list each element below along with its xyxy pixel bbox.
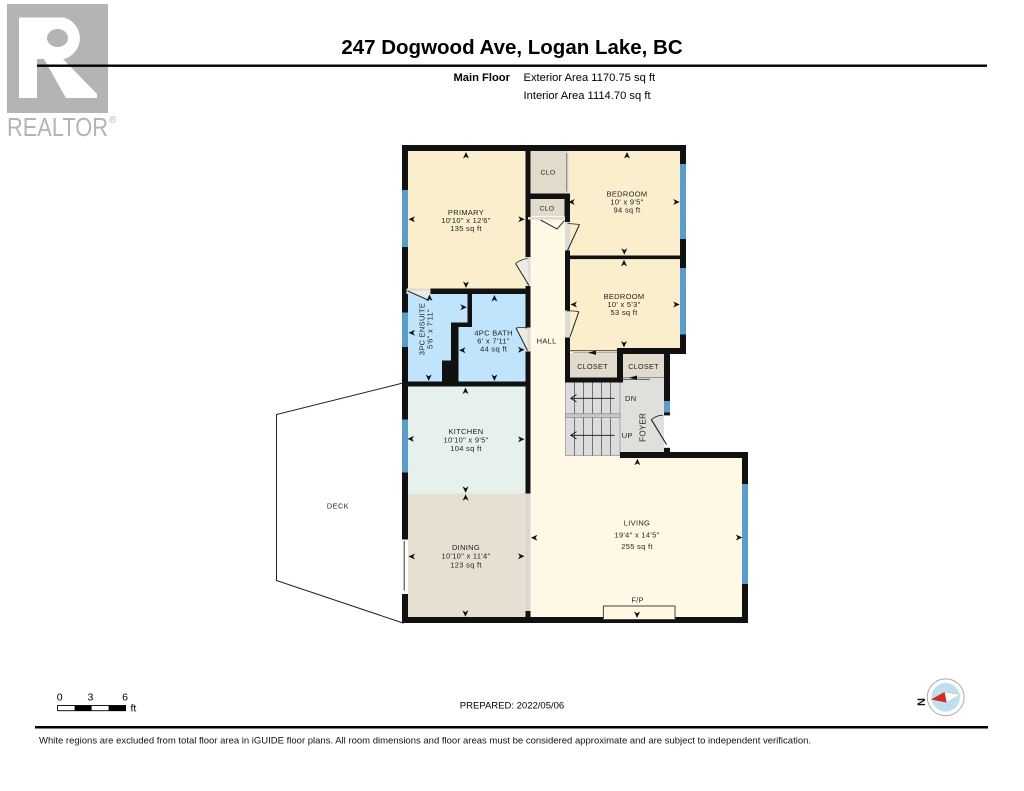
svg-text:REALTOR: REALTOR <box>7 112 108 142</box>
svg-text:White regions are excluded fro: White regions are excluded from total fl… <box>39 736 811 747</box>
svg-text:104 sq ft: 104 sq ft <box>450 444 482 453</box>
svg-text:CLOSET: CLOSET <box>577 362 608 371</box>
svg-text:123 sq ft: 123 sq ft <box>450 561 482 570</box>
svg-text:LIVING: LIVING <box>624 519 650 528</box>
svg-text:PREPARED: 2022/05/06: PREPARED: 2022/05/06 <box>460 701 564 712</box>
svg-text:HALL: HALL <box>537 336 557 345</box>
svg-text:5'6" x 7'11": 5'6" x 7'11" <box>426 309 435 349</box>
svg-text:UP: UP <box>622 431 633 440</box>
svg-text:®: ® <box>109 115 117 126</box>
svg-text:Exterior Area 1170.75 sq ft: Exterior Area 1170.75 sq ft <box>524 72 657 84</box>
svg-text:53 sq ft: 53 sq ft <box>611 308 639 317</box>
svg-text:Main Floor: Main Floor <box>453 72 510 84</box>
svg-text:255 sq ft: 255 sq ft <box>621 542 653 551</box>
svg-text:DECK: DECK <box>327 502 349 511</box>
svg-text:3: 3 <box>87 692 93 704</box>
svg-text:CLO: CLO <box>540 206 555 213</box>
svg-text:19'4" x 14'5": 19'4" x 14'5" <box>614 531 659 540</box>
svg-text:44 sq ft: 44 sq ft <box>480 345 508 354</box>
svg-text:N: N <box>916 698 928 706</box>
svg-text:6: 6 <box>122 692 128 704</box>
svg-text:0: 0 <box>57 692 63 704</box>
svg-text:10'10" x 11'4": 10'10" x 11'4" <box>442 552 491 561</box>
svg-text:F/P: F/P <box>632 596 644 605</box>
svg-text:247 Dogwood Ave, Logan Lake, B: 247 Dogwood Ave, Logan Lake, BC <box>341 36 683 59</box>
svg-text:94 sq ft: 94 sq ft <box>614 206 642 215</box>
svg-text:Interior Area 1114.70 sq ft: Interior Area 1114.70 sq ft <box>524 90 652 102</box>
svg-text:CLOSET: CLOSET <box>628 362 659 371</box>
svg-text:DN: DN <box>625 394 636 403</box>
svg-text:CLO: CLO <box>541 170 556 177</box>
svg-text:ft: ft <box>131 703 137 715</box>
svg-text:FOYER: FOYER <box>639 413 648 442</box>
svg-text:135 sq ft: 135 sq ft <box>450 224 482 233</box>
